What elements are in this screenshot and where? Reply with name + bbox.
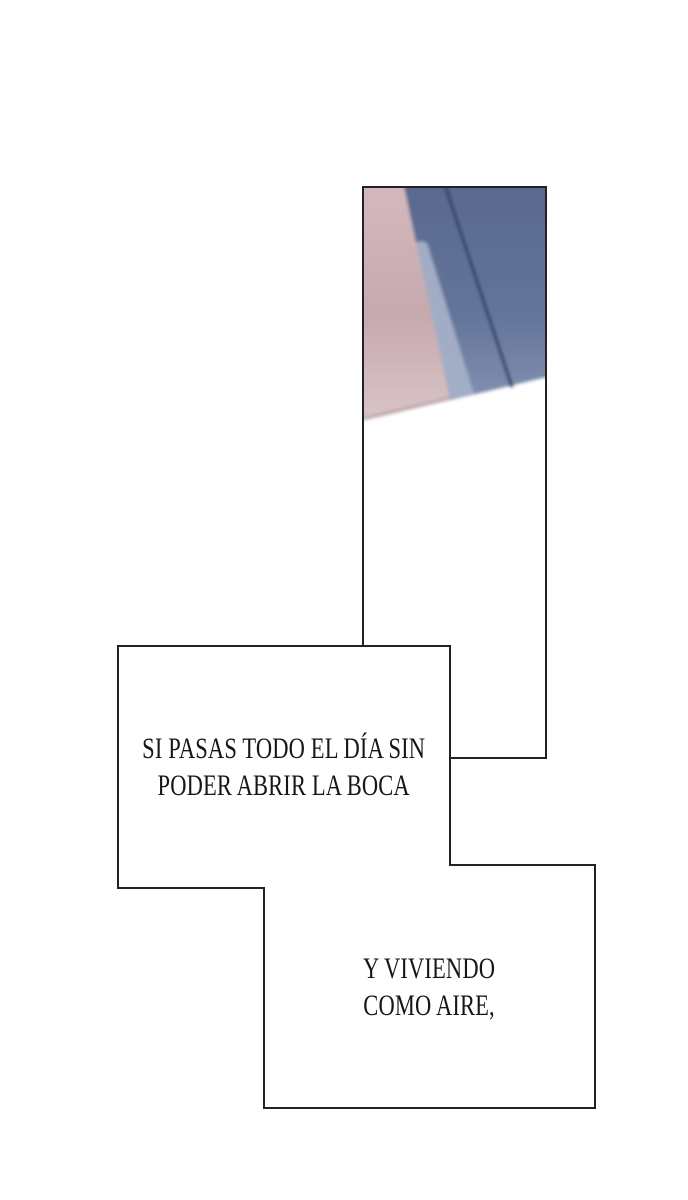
comic-page: SI PASAS TODO EL DÍA SIN PODER ABRIR LA … [0, 0, 688, 1200]
speech-line: Y VIVIENDO [363, 950, 495, 987]
artwork-image [364, 188, 545, 428]
speech-line: SI PASAS TODO EL DÍA SIN [142, 730, 425, 767]
speech-lines-1: SI PASAS TODO EL DÍA SIN PODER ABRIR LA … [142, 730, 425, 804]
speech-line: COMO AIRE, [363, 987, 495, 1024]
speech-line: PODER ABRIR LA BOCA [142, 767, 425, 804]
speech-text-2: Y VIVIENDO COMO AIRE, [263, 864, 596, 1109]
speech-lines-2: Y VIVIENDO COMO AIRE, [363, 950, 495, 1024]
speech-text-1: SI PASAS TODO EL DÍA SIN PODER ABRIR LA … [117, 645, 451, 889]
